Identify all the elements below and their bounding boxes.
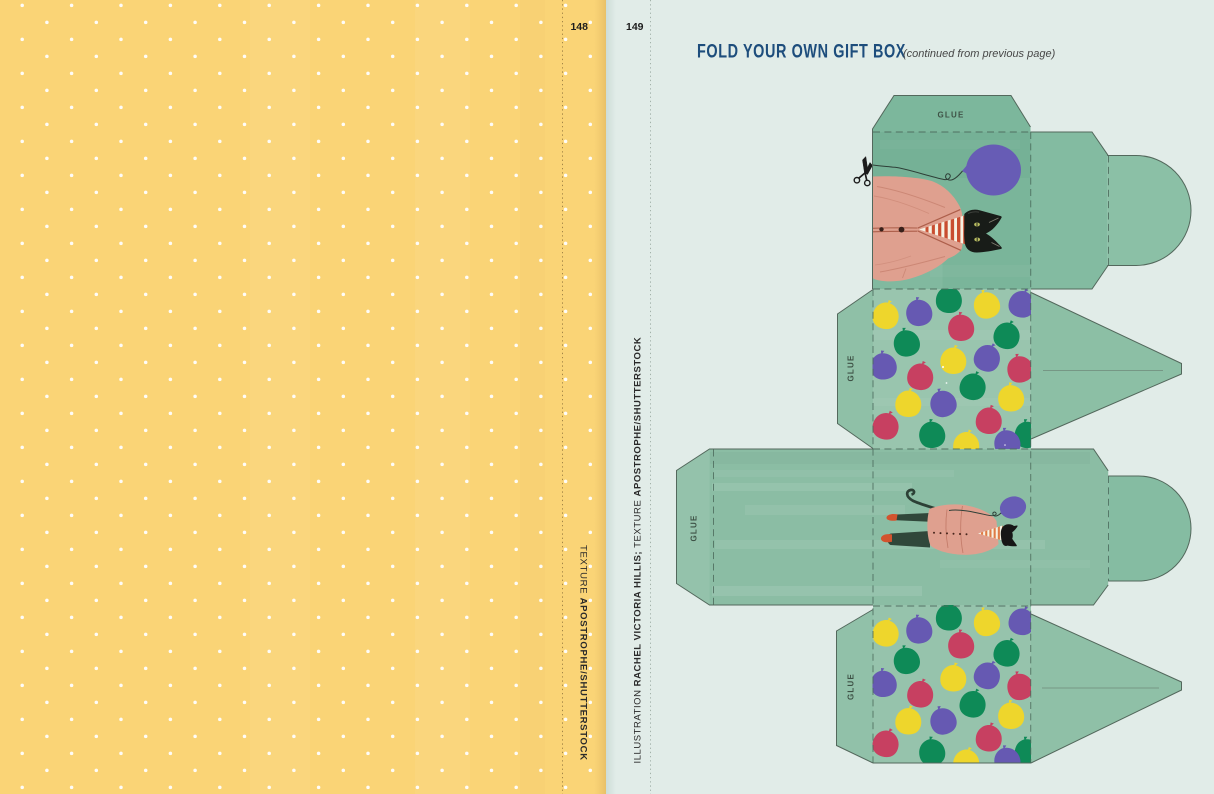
svg-text:GLUE: GLUE [847,354,856,381]
svg-text:(continued from previous page): (continued from previous page) [903,48,1056,60]
svg-text:GLUE: GLUE [690,514,699,541]
svg-text:FOLD YOUR OWN GIFT BOX: FOLD YOUR OWN GIFT BOX [697,39,906,62]
svg-text:GLUE: GLUE [847,673,856,700]
svg-text:148: 148 [570,21,588,33]
svg-text:149: 149 [626,21,644,33]
svg-text:GLUE: GLUE [937,111,964,120]
svg-text:ILLUSTRATION RACHEL VICTORIA H: ILLUSTRATION RACHEL VICTORIA HILLIS; TEX… [633,337,644,764]
svg-text:TEXTURE APOSTROPHE/SHUTTERSTOC: TEXTURE APOSTROPHE/SHUTTERSTOCK [578,545,589,761]
